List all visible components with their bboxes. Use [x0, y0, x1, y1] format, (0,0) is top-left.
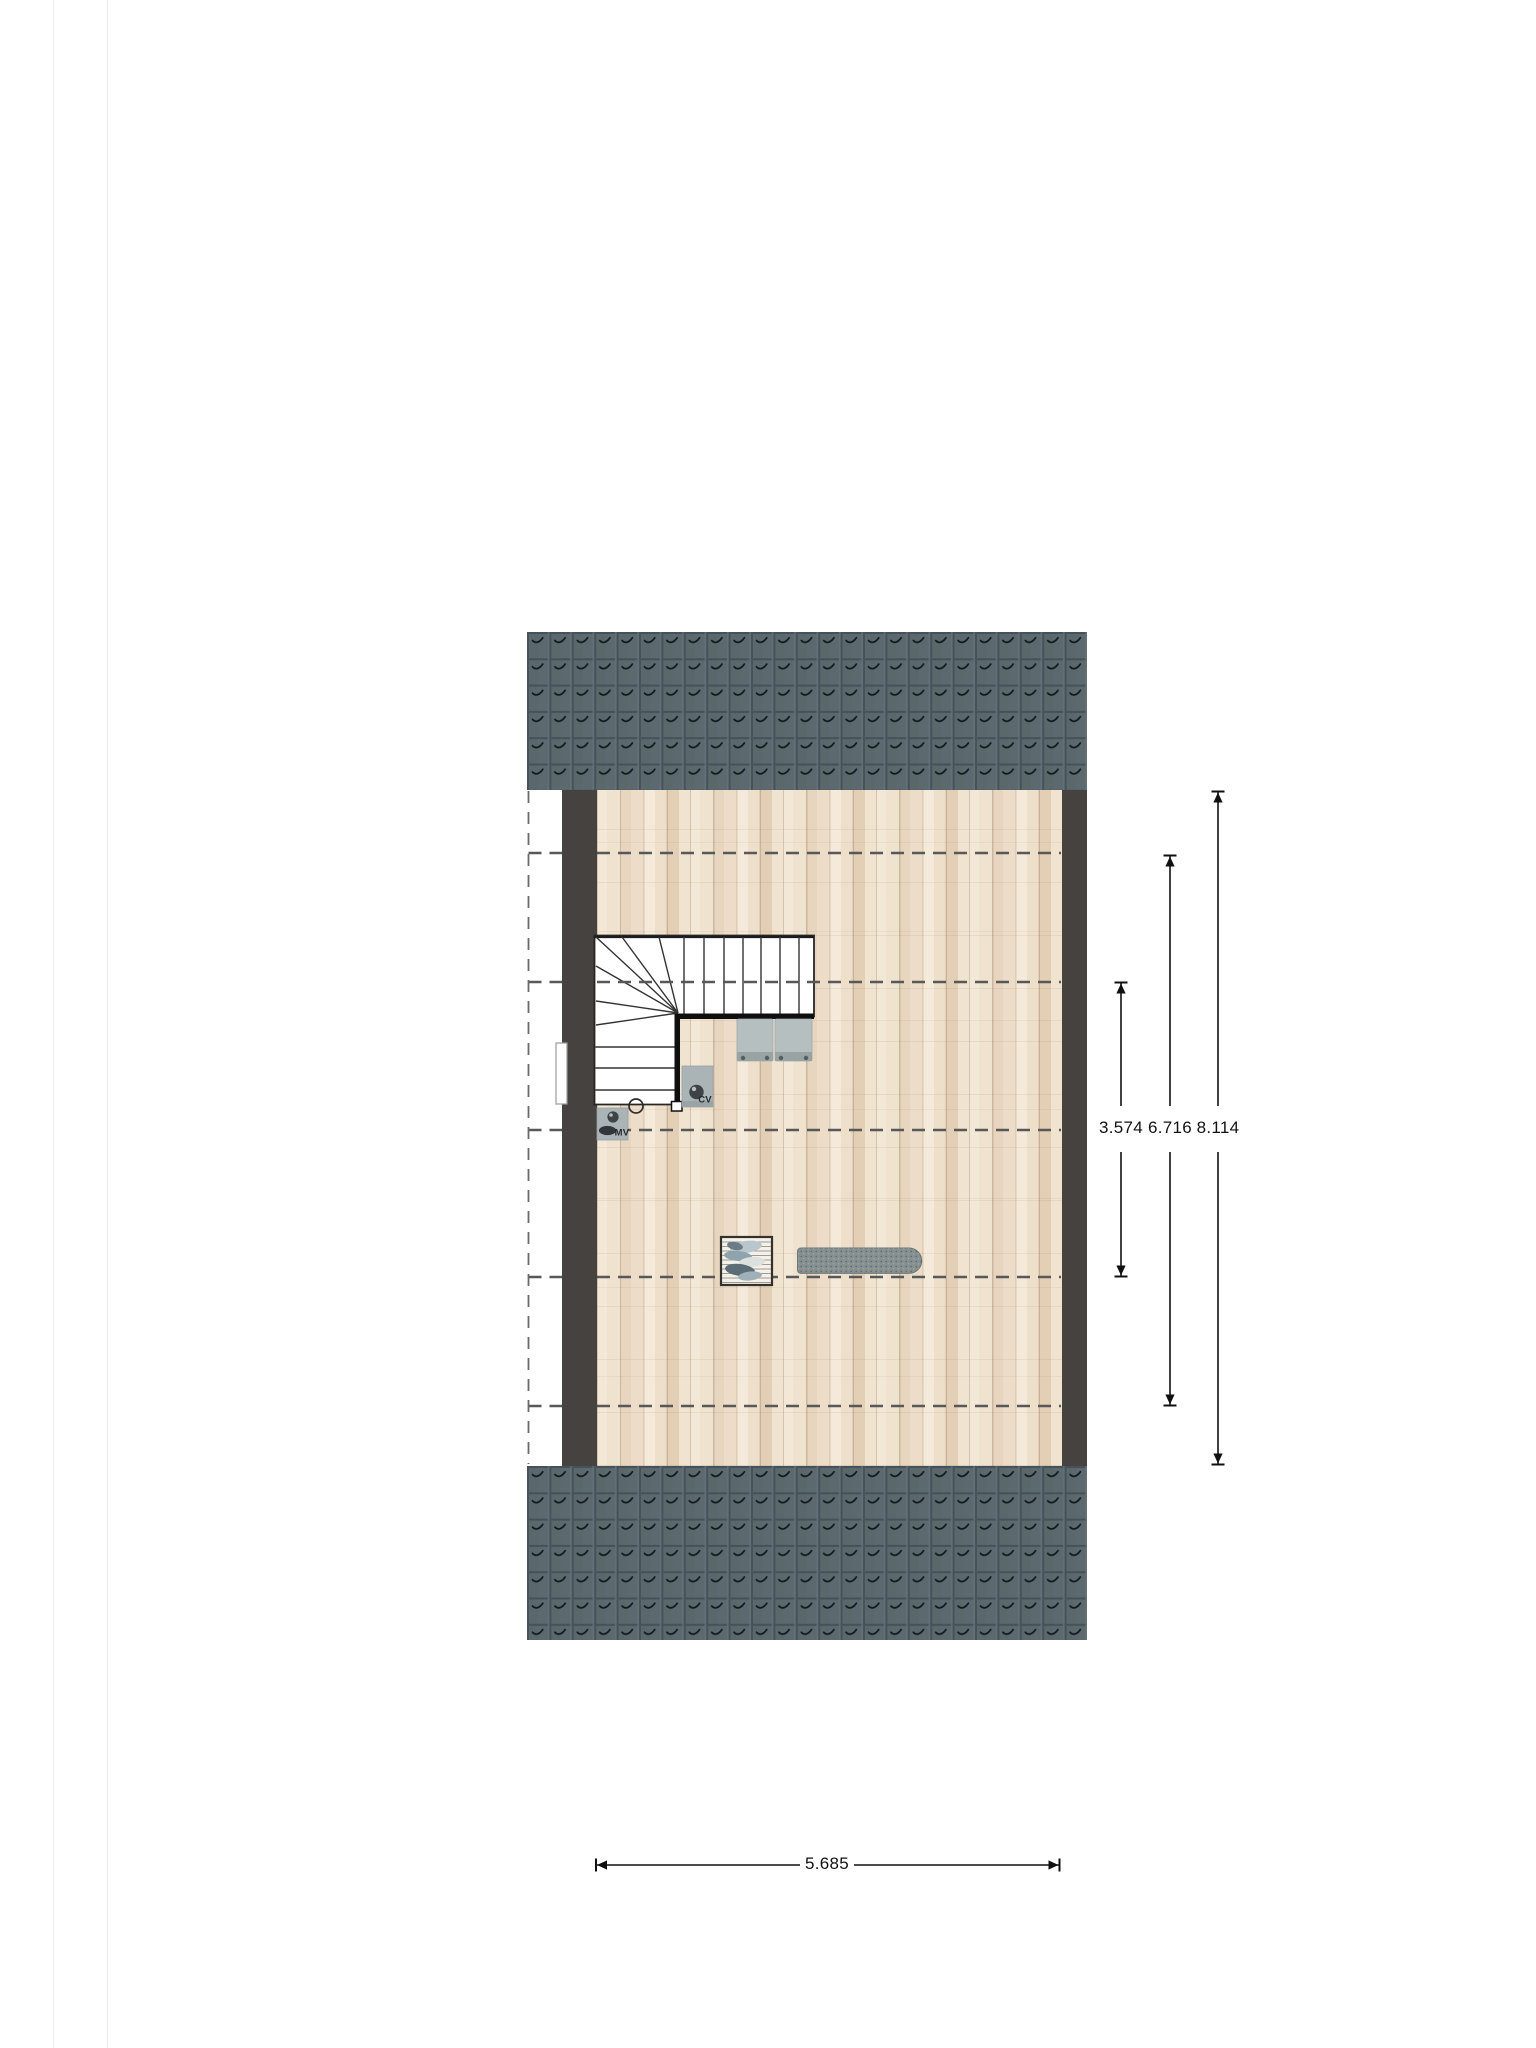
ironing-board	[798, 1248, 922, 1273]
stair-railing-vertical	[675, 1014, 681, 1103]
laundry-basket	[721, 1237, 772, 1285]
newel-post	[672, 1102, 683, 1112]
mv-ventilation-label: MV	[615, 1128, 630, 1139]
plan-linework-overlay	[0, 0, 1536, 2048]
dimension-label-width: 5.685	[805, 1854, 849, 1874]
dimension-label-middle: 6.716	[1148, 1118, 1192, 1138]
cv-boiler-label: CV	[698, 1095, 712, 1106]
wall-niche	[556, 1043, 567, 1104]
stair-railing-horizontal	[675, 1014, 814, 1020]
seat-boxes	[737, 1019, 812, 1061]
dimension-label-inner: 3.574	[1099, 1118, 1143, 1138]
floor-plan-page: 3.574 6.716 8.114 5.685 CV MV	[0, 0, 1536, 2048]
dimension-label-outer: 8.114	[1197, 1118, 1240, 1138]
